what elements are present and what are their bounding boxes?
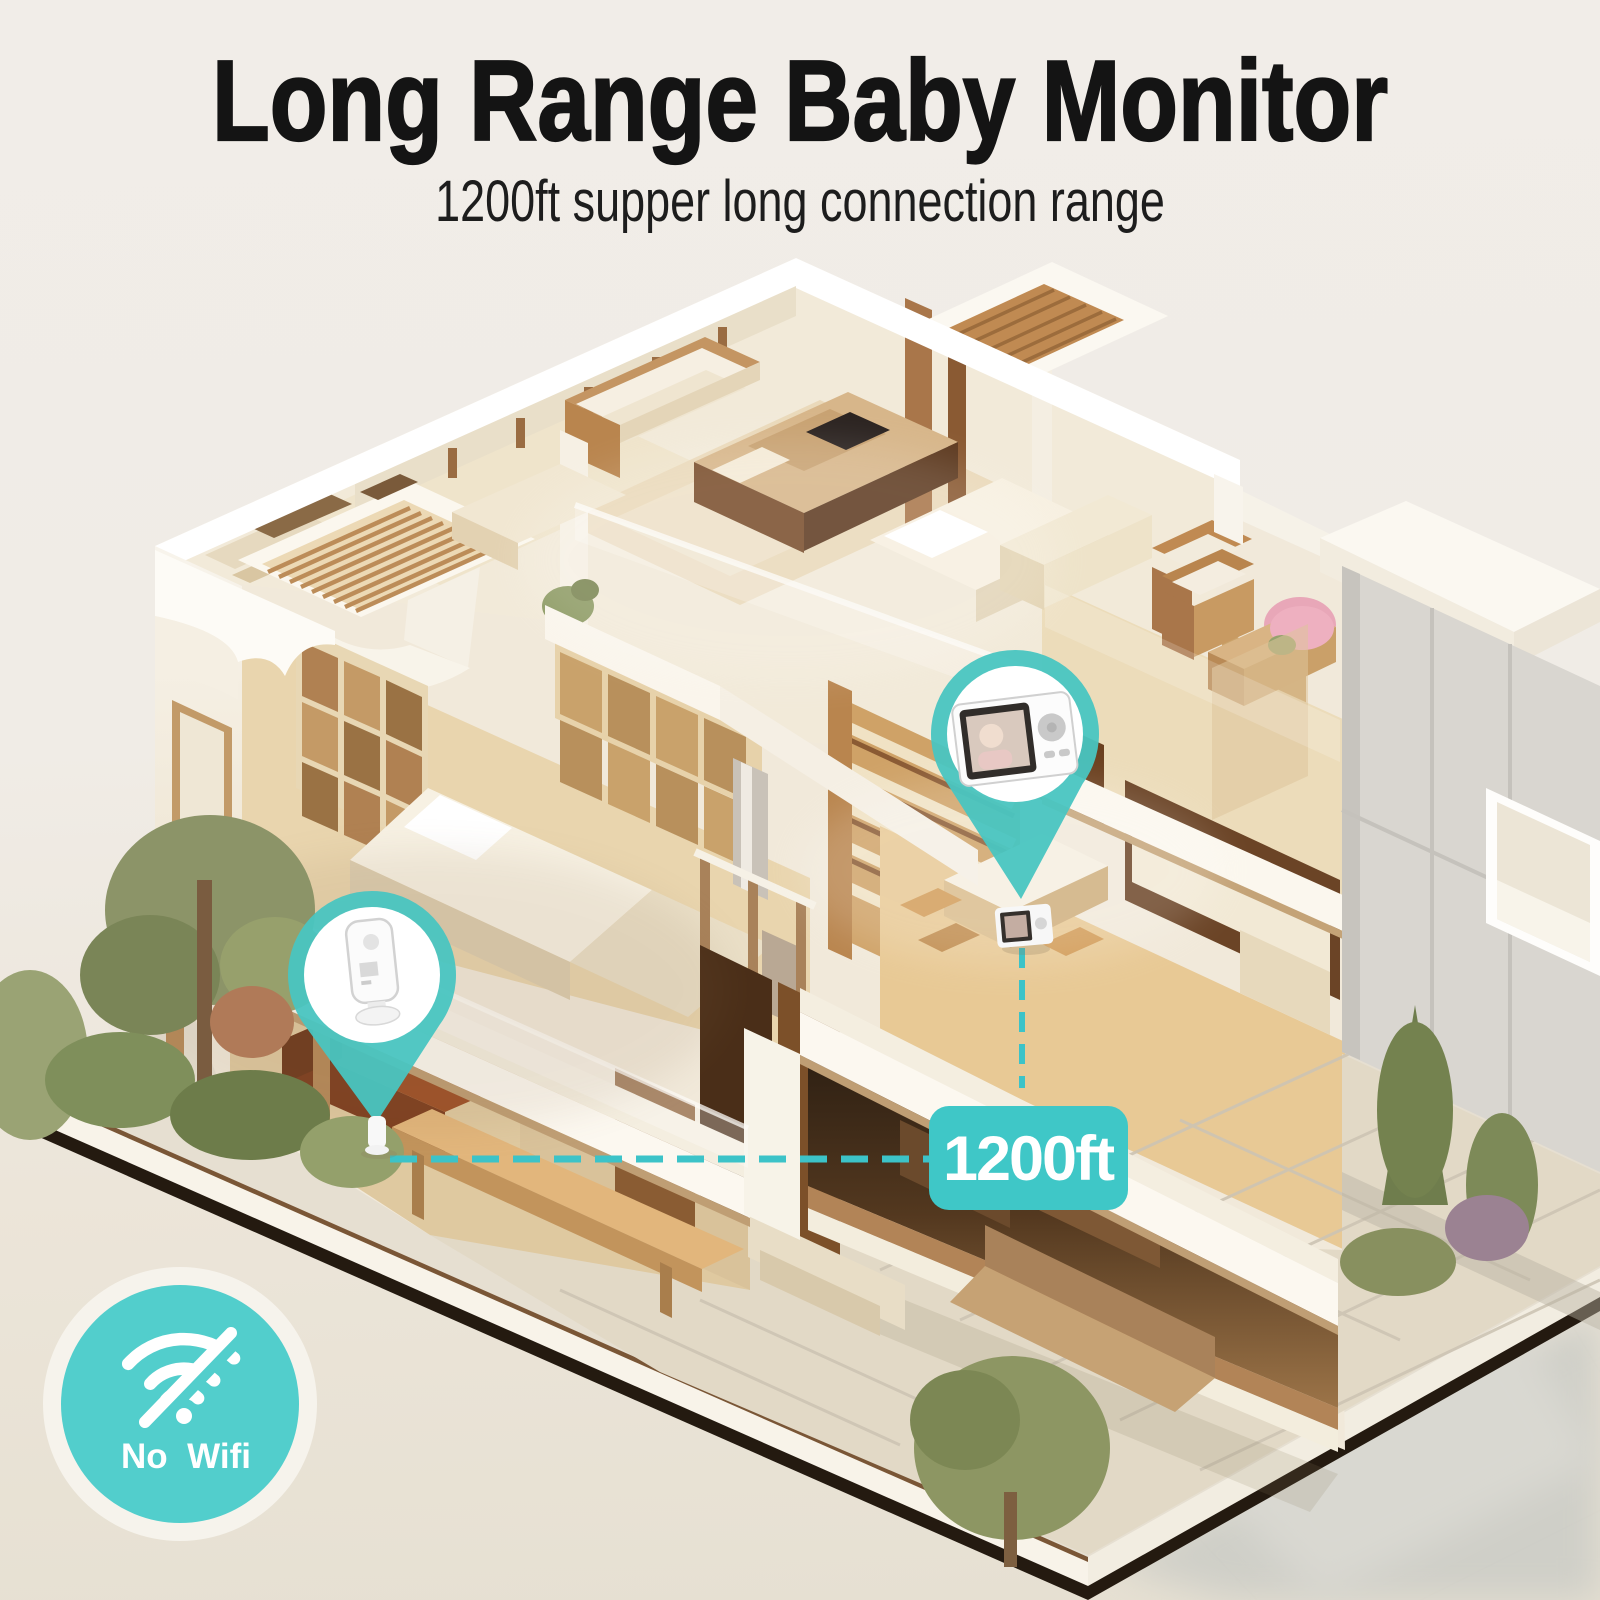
svg-text:No Wifi: No Wifi [121, 1437, 251, 1476]
svg-text:1200ft: 1200ft [943, 1124, 1115, 1194]
